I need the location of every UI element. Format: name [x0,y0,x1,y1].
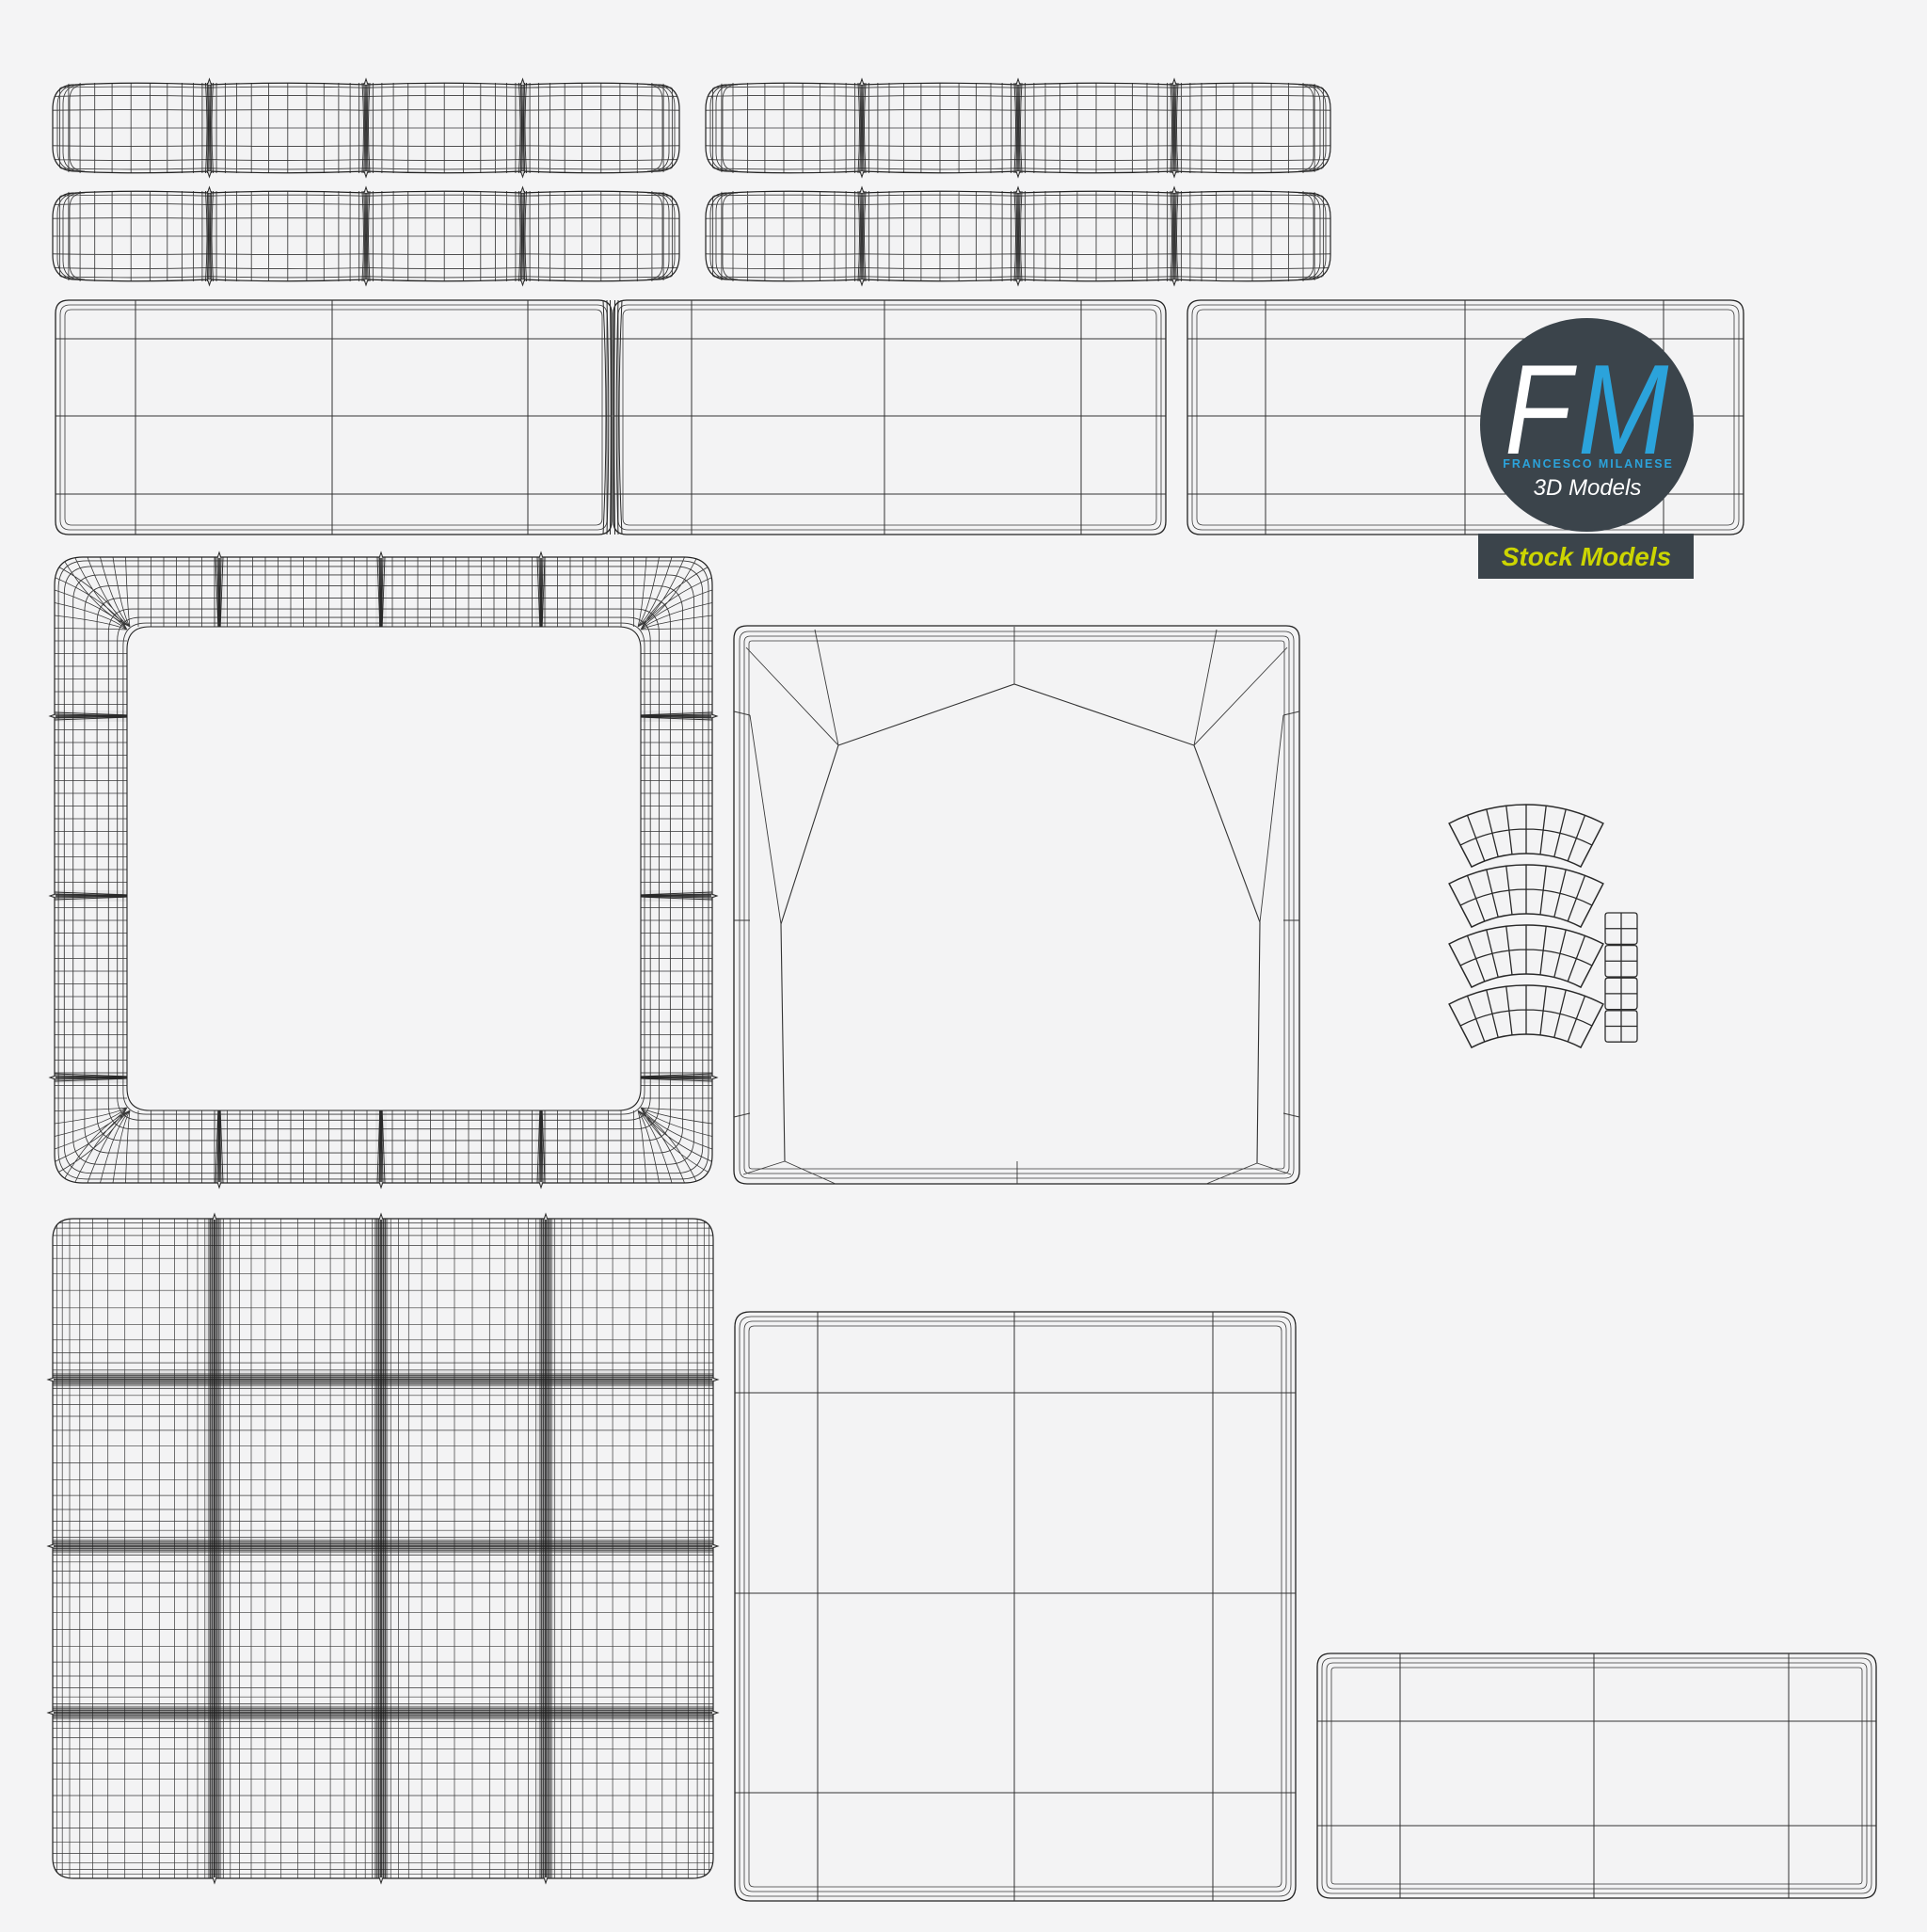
svg-text:3D Models: 3D Models [1534,475,1642,501]
svg-text:FRANCESCO MILANESE: FRANCESCO MILANESE [1503,457,1673,471]
svg-text:Stock Models: Stock Models [1502,542,1671,571]
